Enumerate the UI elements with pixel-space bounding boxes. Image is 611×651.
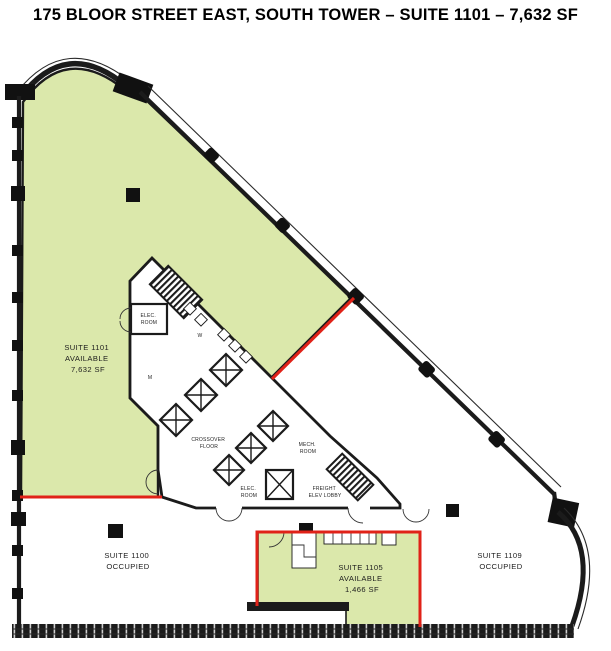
curved-corner-wall [558,512,583,626]
notch-wall [247,602,349,611]
suite-1109-label: SUITE 1109 OCCUPIED [477,551,524,571]
door-gap [216,503,242,512]
elec-room-upper-label: ELEC. ROOM [140,313,157,326]
notch-gap [251,611,345,624]
door-arc [416,509,429,522]
column [446,504,459,517]
elec-room-upper [131,304,167,334]
column [126,188,140,202]
suite-1105-label: SUITE 1105 AVAILABLE 1,466 SF [338,563,385,594]
elec-room-lower-label: ELEC. ROOM [240,486,257,499]
floor-plan-page: 175 BLOOR STREET EAST, SOUTH TOWER – SUI… [0,0,611,651]
door-arc [403,509,416,522]
mech-room-label: MECH. ROOM [299,442,318,455]
entry-door [382,533,396,545]
door-gap [348,503,370,512]
floor-plan: SUITE 1101 AVAILABLE 7,632 SF SUITE 1100… [0,0,611,651]
bottom-exterior-wall [12,624,574,638]
suite-1101-label: SUITE 1101 AVAILABLE 7,632 SF [64,343,111,374]
freight-elev-lobby-label: FREIGHT ELEV LOBBY [309,486,342,499]
suite-1100-label: SUITE 1100 OCCUPIED [104,551,151,571]
corner-column [548,498,580,528]
washroom-w-label: W [198,333,203,339]
column [108,524,123,538]
kitchen-counter [324,533,376,544]
freight-elevator-icon [266,470,293,499]
washroom-m-label: M [148,375,152,381]
